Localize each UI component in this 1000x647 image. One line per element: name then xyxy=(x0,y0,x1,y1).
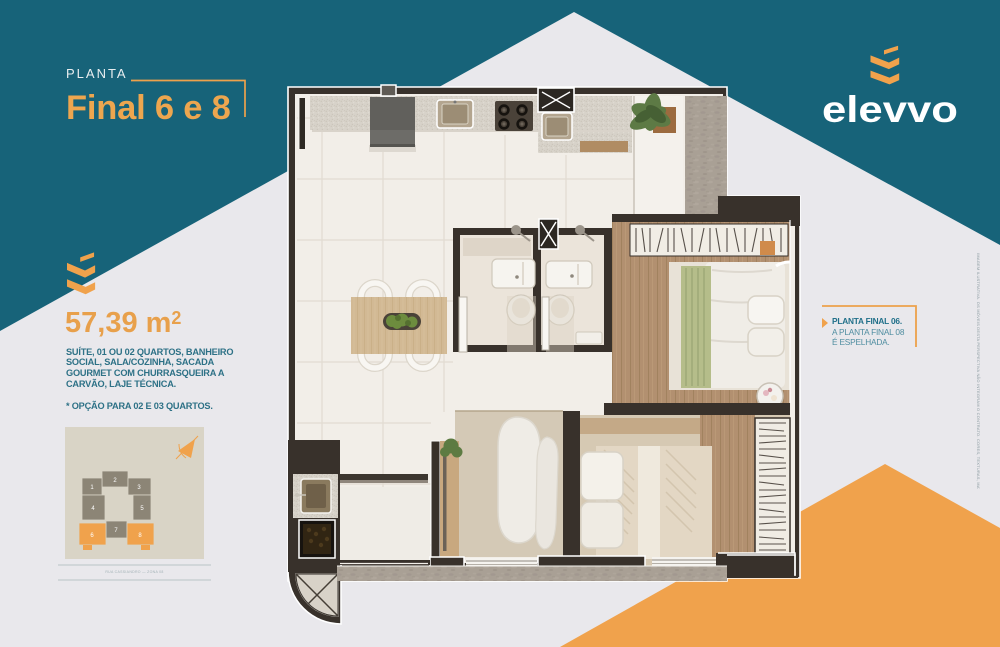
svg-text:elevvo: elevvo xyxy=(822,89,958,130)
